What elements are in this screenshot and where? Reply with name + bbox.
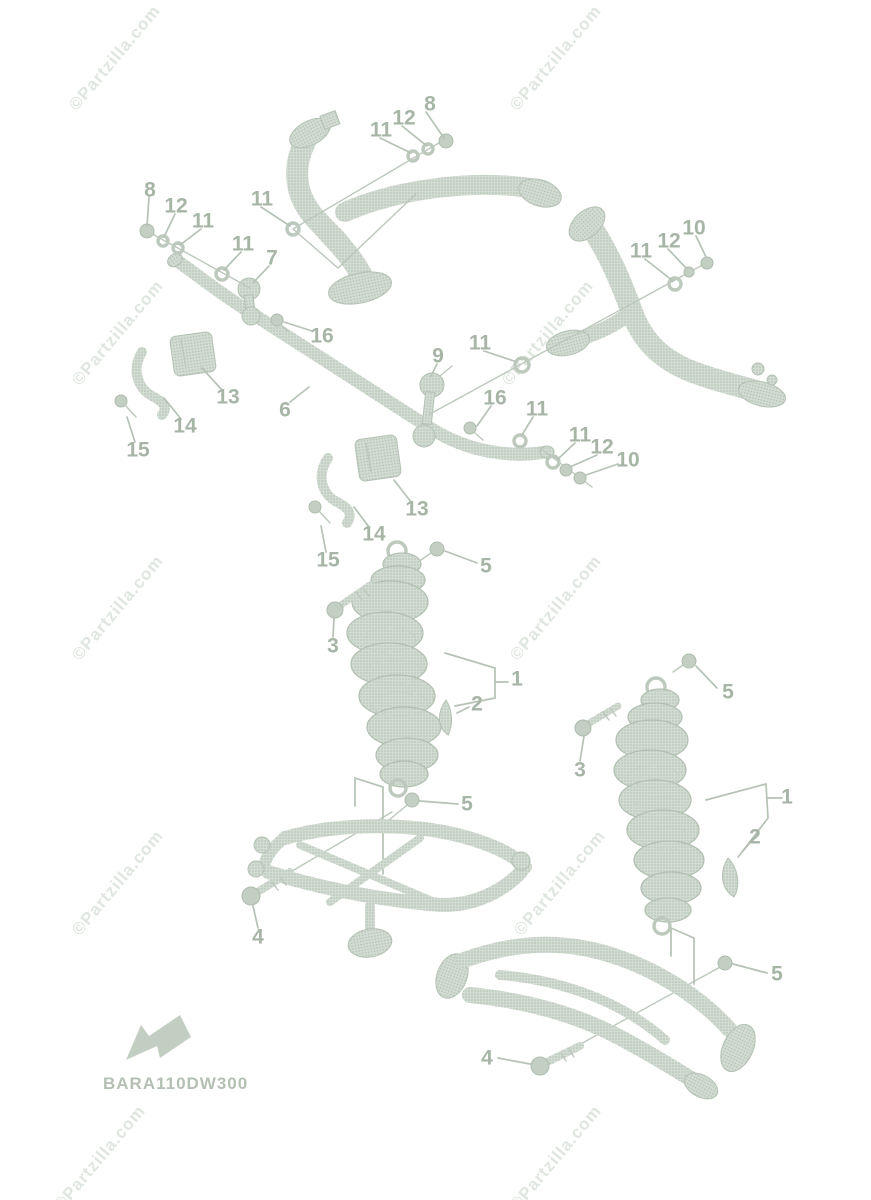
callout-13: 13: [405, 498, 428, 521]
washer-11-left-b: [216, 268, 228, 280]
nut-5-left: [405, 793, 419, 807]
callout-15: 15: [316, 549, 340, 572]
parts-diagram-page: ©Partzilla.com©Partzilla.com©Partzilla.c…: [0, 0, 871, 1200]
callout-3: 3: [574, 759, 586, 782]
bushing-bracket-rear: [322, 458, 350, 523]
callout-5: 5: [480, 555, 492, 578]
callout-15: 15: [126, 439, 150, 462]
callout-8: 8: [144, 179, 156, 202]
bracket-bolt-rear: [309, 501, 330, 523]
callout-12: 12: [164, 195, 187, 218]
washer-11-bar: [514, 435, 526, 447]
callout-2: 2: [471, 693, 483, 716]
callout-2: 2: [749, 826, 761, 849]
callout-11: 11: [469, 332, 492, 355]
washer-12-left: [158, 236, 168, 246]
callout-5: 5: [722, 681, 734, 704]
callout-3: 3: [327, 635, 339, 658]
front-direction-arrow-icon: [126, 1015, 191, 1060]
callout-11: 11: [569, 424, 592, 447]
pivot-bolt-4-right: [531, 1046, 580, 1075]
callout-11: 11: [630, 240, 653, 263]
shock-group-bracket-right: [706, 784, 782, 897]
callout-4: 4: [481, 1047, 493, 1070]
diagram-code: BARA110DW300: [103, 1074, 248, 1093]
bolt-3-right: [575, 706, 618, 736]
axis-lines: [147, 140, 722, 1062]
bolt-8-top: [439, 134, 453, 148]
callout-10: 10: [682, 217, 705, 240]
bushing-bracket-front: [137, 352, 165, 415]
callout-10: 10: [616, 449, 639, 472]
callout-16: 16: [483, 387, 506, 410]
callout-11: 11: [526, 398, 549, 421]
callout-6: 6: [279, 399, 291, 422]
nut-5-right: [718, 956, 732, 970]
bracket-bolt-front: [115, 395, 136, 417]
callout-4: 4: [252, 926, 264, 949]
bolt-10-right: [701, 257, 713, 269]
callout-1: 1: [781, 786, 793, 809]
callout-16: 16: [310, 325, 333, 348]
shock-absorber-right: [614, 678, 704, 934]
lower-arm-right: [430, 945, 762, 1104]
callout-7: 7: [266, 247, 278, 270]
callout-11: 11: [192, 210, 215, 233]
callout-11: 11: [370, 119, 393, 142]
callout-5: 5: [771, 963, 783, 986]
callout-numbers: 8121181211111171112109111616116131415111…: [126, 93, 793, 1070]
callout-11: 11: [232, 233, 255, 256]
callout-9: 9: [432, 345, 444, 368]
callout-1: 1: [511, 668, 523, 691]
bolt-10-barend: [574, 472, 586, 484]
bolt-5-top-left: [421, 542, 444, 560]
exploded-parts-drawing: 8121181211111171112109111616116131415111…: [0, 0, 871, 1200]
bolt-16-rear: [464, 422, 483, 440]
callout-11: 11: [251, 188, 274, 211]
washer-12-barend: [560, 464, 572, 476]
callout-12: 12: [657, 230, 680, 253]
bolt-5-top-right: [673, 654, 696, 672]
callout-8: 8: [424, 93, 436, 116]
callout-12: 12: [392, 107, 415, 130]
upper-arm-left: [285, 111, 565, 310]
stabilizer-bushing-rear: [354, 434, 401, 481]
callout-14: 14: [173, 415, 197, 438]
callout-14: 14: [362, 523, 386, 546]
callout-13: 13: [216, 386, 239, 409]
stabilizer-bushing-front: [169, 331, 216, 376]
washer-11-link: [515, 358, 529, 372]
lower-arm-left: [248, 826, 530, 960]
callout-12: 12: [590, 436, 613, 459]
shock-absorber-left: [347, 542, 441, 796]
callout-5: 5: [461, 793, 473, 816]
